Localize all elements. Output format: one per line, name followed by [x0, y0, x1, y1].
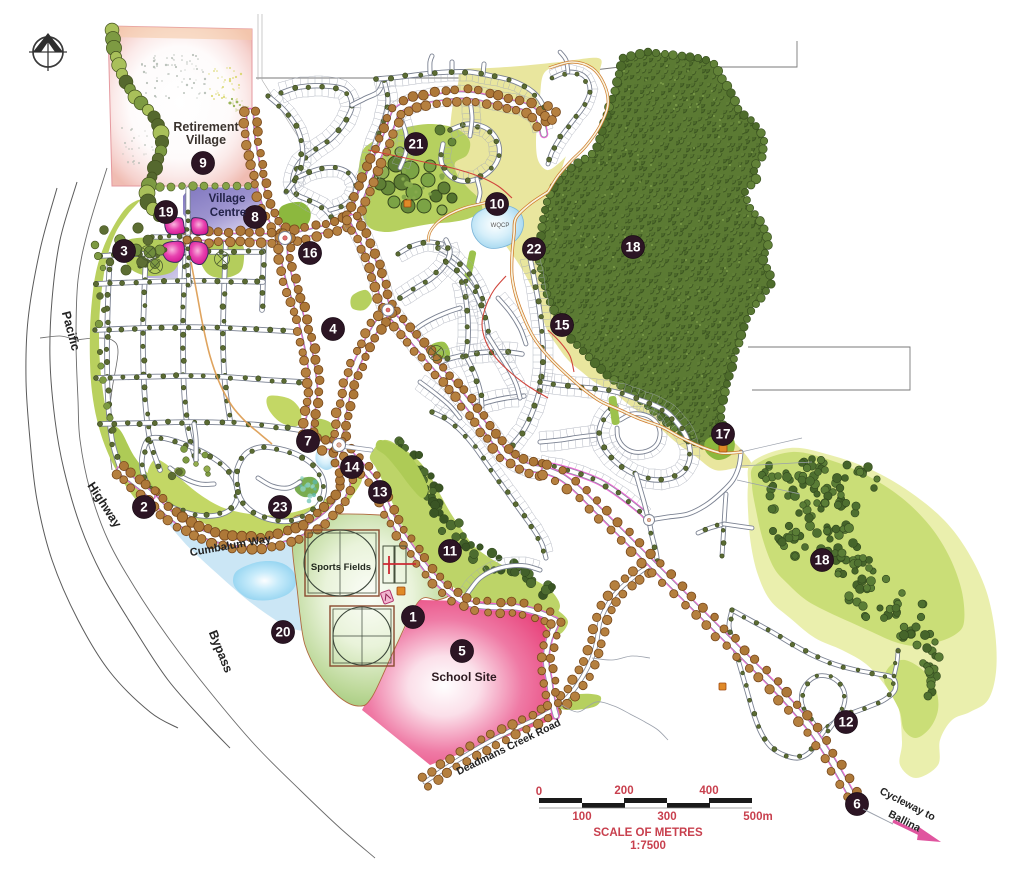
- svg-text:9: 9: [199, 156, 207, 171]
- svg-text:14: 14: [344, 460, 360, 475]
- svg-text:300: 300: [657, 811, 676, 823]
- svg-text:WQCP: WQCP: [491, 223, 510, 229]
- svg-text:7: 7: [304, 434, 312, 449]
- svg-text:1: 1: [409, 610, 417, 625]
- svg-text:6: 6: [853, 797, 861, 812]
- svg-text:13: 13: [372, 485, 388, 500]
- svg-text:19: 19: [158, 205, 173, 220]
- svg-text:100: 100: [572, 811, 591, 823]
- svg-text:15: 15: [554, 318, 570, 333]
- svg-text:SCALE OF METRES: SCALE OF METRES: [593, 827, 703, 839]
- svg-text:8: 8: [251, 210, 259, 225]
- svg-text:12: 12: [838, 715, 853, 730]
- svg-text:16: 16: [302, 246, 318, 261]
- svg-text:22: 22: [526, 242, 541, 257]
- svg-text:20: 20: [275, 625, 290, 640]
- svg-text:17: 17: [715, 427, 730, 442]
- svg-text:400: 400: [699, 785, 718, 797]
- svg-text:School Site: School Site: [431, 670, 497, 684]
- svg-text:18: 18: [625, 240, 641, 255]
- svg-text:23: 23: [272, 500, 288, 515]
- svg-text:1:7500: 1:7500: [630, 840, 666, 852]
- svg-text:18: 18: [814, 553, 830, 568]
- svg-text:Village: Village: [209, 193, 246, 205]
- svg-text:Retirement: Retirement: [173, 120, 239, 134]
- svg-text:21: 21: [408, 137, 424, 152]
- svg-text:2: 2: [140, 500, 148, 515]
- svg-text:200: 200: [614, 785, 633, 797]
- svg-text:11: 11: [443, 544, 458, 559]
- svg-text:Sports Fields: Sports Fields: [311, 562, 371, 573]
- svg-text:Centre: Centre: [210, 207, 246, 219]
- svg-text:4: 4: [329, 322, 337, 337]
- svg-text:Village: Village: [186, 133, 226, 147]
- svg-text:0: 0: [536, 786, 542, 798]
- svg-text:500m: 500m: [743, 811, 772, 823]
- svg-text:10: 10: [489, 197, 504, 212]
- svg-text:5: 5: [458, 644, 466, 659]
- svg-text:3: 3: [120, 244, 128, 259]
